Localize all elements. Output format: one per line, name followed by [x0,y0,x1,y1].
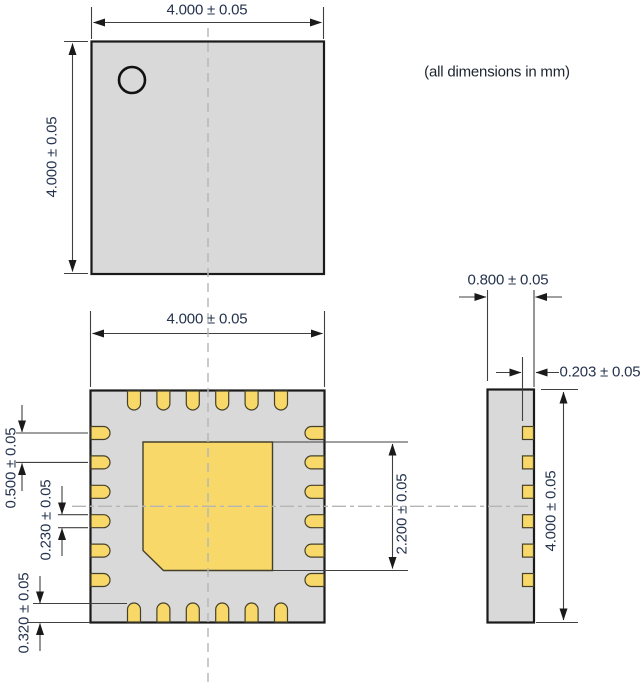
side-view-lead [523,574,534,587]
side-view-lead [523,515,534,528]
thickness-label: 0.800 ± 0.05 [468,273,549,288]
lead-pad [91,427,110,440]
pad-pitch-label: 0.500 ± 0.05 [4,428,19,509]
lead-pad [305,574,324,587]
lead-pad [305,515,324,528]
pad-pitch-dimension [16,405,88,491]
pad-length-label: 0.320 ± 0.05 [17,573,32,654]
pad-width-label: 0.230 ± 0.05 [39,480,54,561]
lead-pad [91,456,110,469]
lead-pad [91,485,110,498]
lead-pad [157,391,170,410]
lead-pad [275,603,288,622]
lead-pad [305,544,324,557]
lead-thickness-label: 0.203 ± 0.05 [560,365,641,380]
side-view-lead [523,544,534,557]
side-view [459,290,578,623]
package-drawing: 4.000 ± 0.05 4.000 ± 0.05 (all dimension… [0,0,642,688]
units-note: (all dimensions in mm) [424,65,570,80]
lead-pad [216,391,229,410]
top-view [64,7,324,274]
lead-pad [186,603,199,622]
lead-pad [305,485,324,498]
top-view-width-label: 4.000 ± 0.05 [167,3,248,18]
lead-pad [216,603,229,622]
lead-pad [91,544,110,557]
lead-pad [305,427,324,440]
lead-pad [128,391,141,410]
side-view-lead [523,427,534,440]
top-view-height-label: 4.000 ± 0.05 [45,117,60,198]
drawing-layer [0,0,642,688]
pad-width-dimension [58,486,88,556]
side-height-label: 4.000 ± 0.05 [544,471,559,552]
lead-pad [186,391,199,410]
bottom-view [16,311,408,651]
lead-pad [91,515,110,528]
side-view-lead [523,456,534,469]
top-view-height-dimension [64,42,88,274]
bottom-view-width-label: 4.000 ± 0.05 [167,312,248,327]
lead-pad [91,574,110,587]
center-pad-label: 2.200 ± 0.05 [395,474,410,555]
lead-pad [128,603,141,622]
lead-pad [245,391,258,410]
lead-pad [245,603,258,622]
lead-pad [305,456,324,469]
lead-pad [157,603,170,622]
side-view-lead [523,485,534,498]
lead-pad [275,391,288,410]
